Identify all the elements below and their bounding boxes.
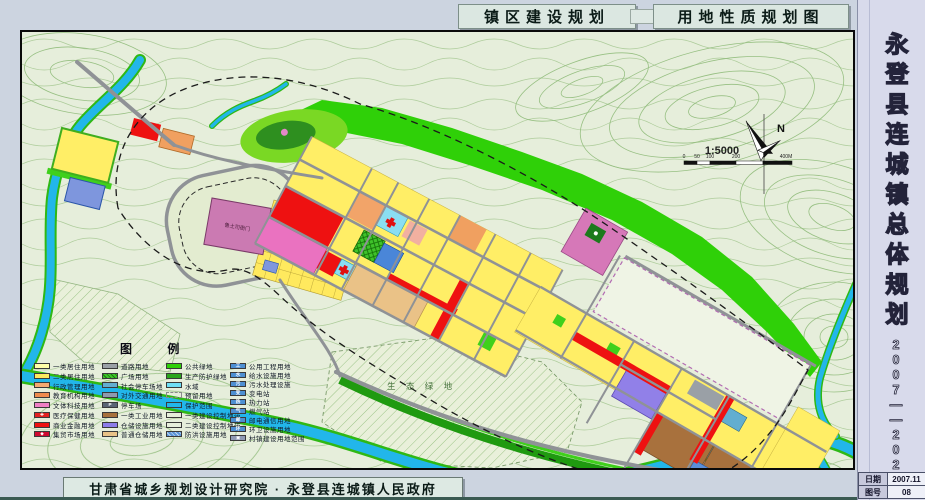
credit-text: 甘肃省城乡规划设计研究院 · 永登县连城镇人民政府 bbox=[89, 479, 437, 498]
legend-swatch: 邮 bbox=[230, 417, 246, 423]
legend-item-label: 道路用地 bbox=[121, 361, 149, 371]
legend-swatch-symbol: 工 bbox=[236, 364, 241, 368]
legend-column-4: 工公用工程用地水给水设施用地污污水处理设施变变电站热热力站气燃气站邮邮电通信用地… bbox=[230, 361, 324, 443]
legend-columns: 一类居住用地二类居住用地行政管理用地教育机构用地文体科技用地✚医疗保健用地商业金… bbox=[34, 361, 326, 443]
legend-item-label: 一类居住用地 bbox=[53, 361, 95, 371]
date-label: 日期 bbox=[859, 473, 888, 486]
sheet-number-value: 08 bbox=[888, 486, 925, 499]
legend-swatch bbox=[102, 422, 118, 428]
legend-swatch bbox=[102, 382, 118, 388]
legend-item: 变变电站 bbox=[230, 388, 324, 397]
legend-item-label: 生产防护绿地 bbox=[185, 371, 227, 381]
legend-swatch-symbol: 水 bbox=[236, 373, 241, 377]
legend-swatch: 工 bbox=[230, 363, 246, 369]
sidebar-divider bbox=[869, 0, 870, 500]
legend-swatch bbox=[166, 392, 182, 398]
scalebar-tick: 200 bbox=[732, 154, 741, 160]
legend-swatch bbox=[166, 382, 182, 388]
legend-item-label: 村镇建设用地范围 bbox=[249, 433, 305, 443]
legend-item: 二类居住用地 bbox=[34, 371, 102, 381]
legend-swatch: 热 bbox=[230, 399, 246, 405]
legend-swatch bbox=[34, 422, 50, 428]
legend-item: 热热力站 bbox=[230, 397, 324, 406]
credit-bar: 甘肃省城乡规划设计研究院 · 永登县连城镇人民政府 bbox=[63, 477, 463, 499]
scalebar-tick: 100 bbox=[706, 154, 715, 160]
legend-swatch-symbol: ▣ bbox=[236, 436, 240, 440]
legend-item-label: 仓储设施用地 bbox=[121, 420, 163, 430]
legend-item-label: 二类居住用地 bbox=[53, 371, 95, 381]
legend-item-label: 文体科技用地 bbox=[53, 400, 95, 410]
legend-column-3: 公共绿地生产防护绿地水域预留用地保护范围一类建设控制地带二类建设控制地带防洪设施… bbox=[166, 361, 230, 443]
legend-swatch: 环 bbox=[230, 426, 246, 432]
legend-swatch-symbol: 变 bbox=[236, 391, 241, 395]
legend-item-label: 社会停车场地 bbox=[121, 381, 163, 391]
legend-swatch bbox=[34, 363, 50, 369]
legend-item: 公共绿地 bbox=[166, 361, 230, 371]
legend-item: 一类建设控制地带 bbox=[166, 410, 230, 420]
legend-item: 水域 bbox=[166, 381, 230, 391]
legend-item: 文体科技用地 bbox=[34, 400, 102, 410]
legend-item-label: 普通仓储用地 bbox=[121, 429, 163, 439]
legend-swatch-symbol: 热 bbox=[236, 400, 241, 404]
title-block-table: 日期 2007.11 图号 08 bbox=[858, 472, 925, 499]
legend-item: 对外交通用地 bbox=[102, 390, 166, 400]
legend-swatch-symbol: 环 bbox=[236, 427, 241, 431]
map-frame: 鲁土司衙门 bbox=[20, 30, 855, 470]
sheet-number-label: 图号 bbox=[859, 486, 888, 499]
legend-item: 广场用地 bbox=[102, 371, 166, 381]
title-right-text: 用地性质规划图 bbox=[677, 6, 824, 27]
legend-swatch: 气 bbox=[230, 408, 246, 414]
legend-item: 仓储设施用地 bbox=[102, 420, 166, 430]
legend-item-label: 集贸市场用地 bbox=[53, 429, 95, 439]
title-left-text: 镇区建设规划 bbox=[484, 6, 610, 27]
legend-item-label: 水域 bbox=[185, 381, 199, 391]
legend-swatch bbox=[102, 392, 118, 398]
legend-title: 图 例 bbox=[120, 340, 326, 357]
title-landuse-map: 用地性质规划图 bbox=[653, 4, 849, 29]
legend-item: 预留用地 bbox=[166, 390, 230, 400]
sidebar-title-panel: 永登县连城镇总体规划 2007——2020 日期 2007.11 图号 08 bbox=[857, 0, 925, 500]
legend-item: 保护范围 bbox=[166, 400, 230, 410]
legend-swatch-symbol: 气 bbox=[236, 409, 241, 413]
legend-item: 道路用地 bbox=[102, 361, 166, 371]
legend-item: ✚医疗保健用地 bbox=[34, 410, 102, 420]
legend-swatch-symbol: ✚ bbox=[40, 413, 44, 417]
legend-swatch bbox=[102, 412, 118, 418]
legend-item: ◆集贸市场用地 bbox=[34, 430, 102, 440]
legend-item-label: 对外交通用地 bbox=[121, 390, 163, 400]
legend-swatch bbox=[102, 373, 118, 379]
legend-item-label: 广场用地 bbox=[121, 371, 149, 381]
legend-item-label: 公共绿地 bbox=[185, 361, 213, 371]
legend-item: 防洪设施用地 bbox=[166, 430, 230, 440]
legend-swatch bbox=[166, 412, 182, 418]
legend-swatch bbox=[166, 402, 182, 408]
legend: 图 例 一类居住用地二类居住用地行政管理用地教育机构用地文体科技用地✚医疗保健用… bbox=[34, 340, 326, 443]
legend-item: ▣村镇建设用地范围 bbox=[230, 434, 324, 443]
legend-swatch bbox=[102, 363, 118, 369]
legend-item: 行政管理用地 bbox=[34, 381, 102, 391]
legend-item: 教育机构用地 bbox=[34, 390, 102, 400]
legend-swatch bbox=[34, 382, 50, 388]
legend-swatch bbox=[34, 402, 50, 408]
title-town-construction-plan: 镇区建设规划 bbox=[458, 4, 636, 29]
legend-item: 生产防护绿地 bbox=[166, 371, 230, 381]
legend-item: 污污水处理设施 bbox=[230, 379, 324, 388]
legend-swatch: P bbox=[102, 402, 118, 408]
plan-years-vertical: 2007——2020 bbox=[889, 338, 903, 488]
eco-area-label: 生 态 绿 地 bbox=[387, 381, 456, 391]
legend-swatch-symbol: P bbox=[108, 403, 111, 407]
legend-item-label: 停车场 bbox=[121, 400, 142, 410]
legend-swatch-symbol: ◆ bbox=[40, 432, 44, 436]
plan-title-vertical: 永登县连城镇总体规划 bbox=[878, 32, 912, 332]
legend-item-label: 防洪设施用地 bbox=[185, 429, 227, 439]
legend-item: 社会停车场地 bbox=[102, 381, 166, 391]
legend-item-label: 行政管理用地 bbox=[53, 381, 95, 391]
legend-item: 商业金融用地 bbox=[34, 420, 102, 430]
legend-swatch bbox=[34, 392, 50, 398]
legend-swatch bbox=[34, 373, 50, 379]
scalebar-tick: 0 bbox=[683, 154, 686, 160]
legend-swatch: ▣ bbox=[230, 435, 246, 441]
scalebar-tick: 400M bbox=[780, 154, 793, 160]
legend-swatch-symbol: 污 bbox=[236, 382, 241, 386]
north-label: N bbox=[777, 123, 785, 135]
legend-column-1: 一类居住用地二类居住用地行政管理用地教育机构用地文体科技用地✚医疗保健用地商业金… bbox=[34, 361, 102, 443]
legend-swatch: 污 bbox=[230, 381, 246, 387]
legend-item-label: 医疗保健用地 bbox=[53, 410, 95, 420]
scalebar-tick: 50 bbox=[694, 154, 700, 160]
legend-swatch-symbol: 邮 bbox=[236, 418, 241, 422]
legend-item: 二类建设控制地带 bbox=[166, 420, 230, 430]
legend-swatch: 变 bbox=[230, 390, 246, 396]
legend-item-label: 商业金融用地 bbox=[53, 420, 95, 430]
legend-item-label: 预留用地 bbox=[185, 390, 213, 400]
legend-swatch: ◆ bbox=[34, 431, 50, 437]
legend-column-2: 道路用地广场用地社会停车场地对外交通用地P停车场一类工业用地仓储设施用地普通仓储… bbox=[102, 361, 166, 443]
legend-item: 一类居住用地 bbox=[34, 361, 102, 371]
date-value: 2007.11 bbox=[888, 473, 925, 486]
legend-swatch bbox=[166, 363, 182, 369]
legend-swatch bbox=[166, 373, 182, 379]
legend-swatch bbox=[102, 431, 118, 437]
legend-swatch bbox=[166, 431, 182, 437]
legend-item-label: 保护范围 bbox=[185, 400, 213, 410]
legend-swatch: 水 bbox=[230, 372, 246, 378]
legend-item: 一类工业用地 bbox=[102, 410, 166, 420]
legend-item: P停车场 bbox=[102, 400, 166, 410]
legend-swatch: ✚ bbox=[34, 412, 50, 418]
legend-swatch bbox=[166, 422, 182, 428]
legend-item-label: 一类工业用地 bbox=[121, 410, 163, 420]
legend-item-label: 教育机构用地 bbox=[53, 390, 95, 400]
legend-item: 普通仓储用地 bbox=[102, 430, 166, 440]
